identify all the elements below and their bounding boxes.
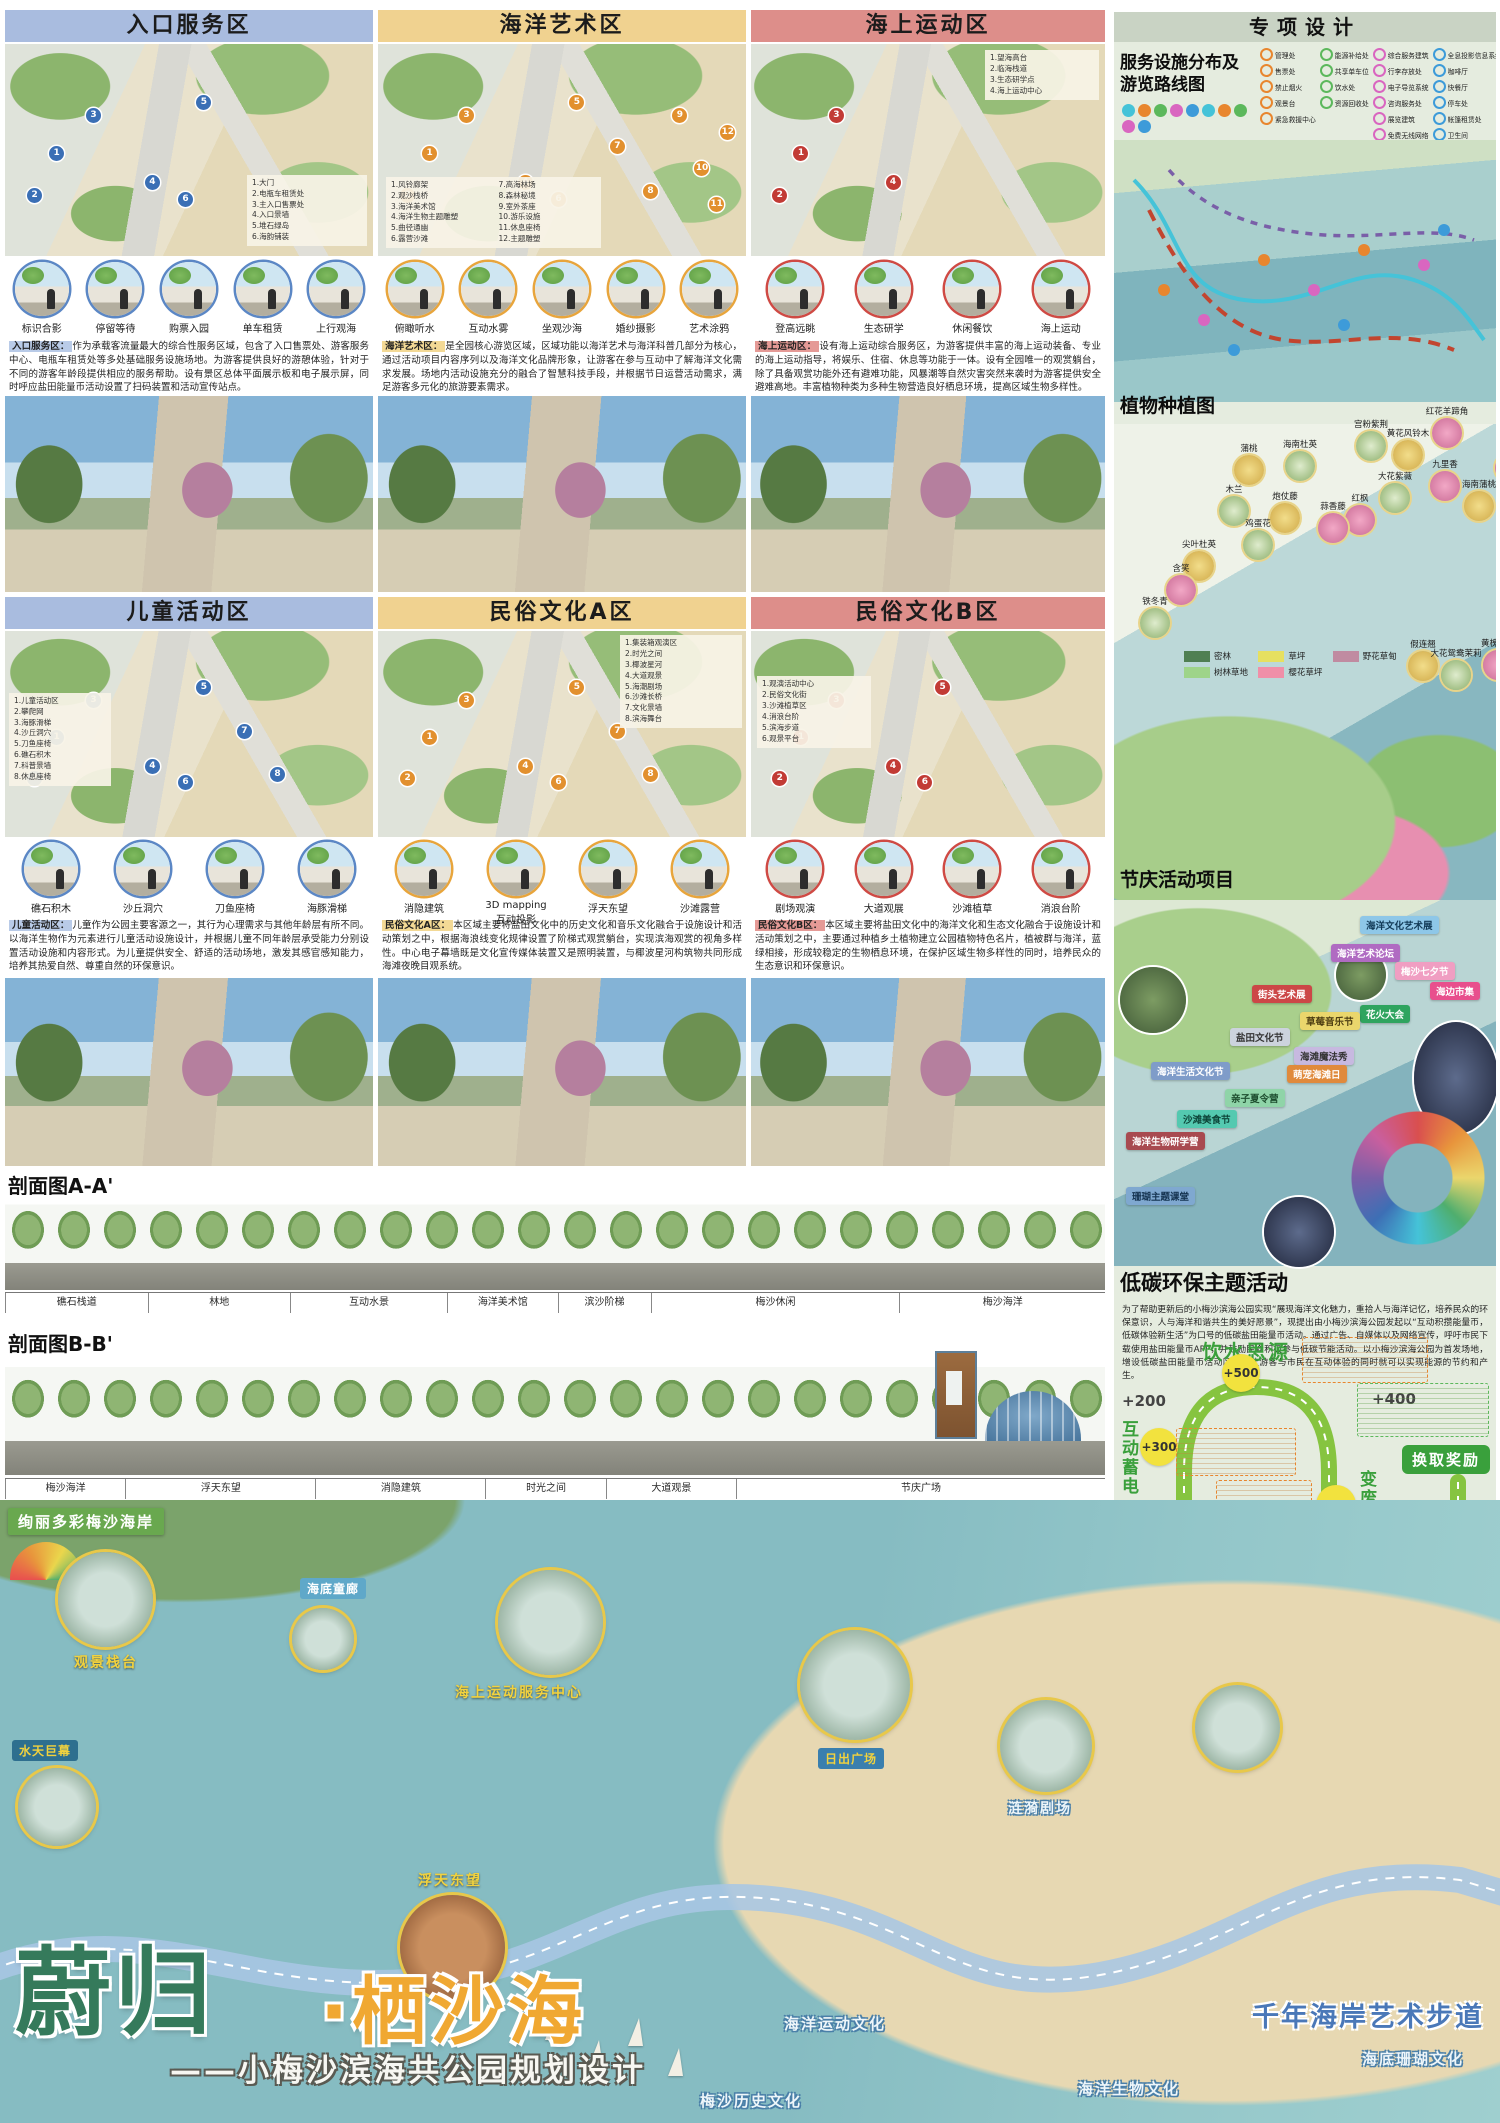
plan-marker: 2 (772, 188, 787, 203)
activity-icon-item: 生态研学 (853, 262, 915, 335)
special-design-panel: 专项设计 服务设施分布及 游览路线图 管理处售票处禁止烟火观景台紧急救援中心 能… (1114, 12, 1496, 1760)
activity-vignette-icon (535, 262, 589, 316)
plan-legend-item: 1.风铃廊架 (391, 180, 489, 191)
zone-tag: 民俗文化A区 (382, 920, 453, 931)
festival-chip: 街头艺术展 (1252, 985, 1312, 1003)
station-reward: 换取奖励 (1402, 1445, 1490, 1474)
facility-dot-icon (1433, 48, 1446, 61)
plan-marker: 1 (793, 146, 808, 161)
activity-icon-item: 上行观海 (305, 262, 367, 335)
beach-area-tag: 绚丽多彩梅沙海岸 (8, 1508, 164, 1535)
activity-icon-label: 艺术涂鸦 (678, 320, 740, 335)
callout-circle-ripple-theater (1000, 1700, 1092, 1792)
festival-chip: 海洋文化艺术展 (1360, 916, 1439, 934)
activity-vignette-icon (581, 842, 635, 896)
activity-icon-label: 沙丘洞穴 (112, 900, 174, 915)
festival-chip: 萌宠海滩日 (1287, 1065, 1347, 1083)
activity-vignette-icon (682, 262, 736, 316)
plan-legend-item: 2.时光之间 (625, 649, 737, 660)
facility-dot-icon (1373, 48, 1386, 61)
planting-legend-label: 树林草地 (1214, 666, 1248, 678)
festival-chip: 珊瑚主题课堂 (1126, 1187, 1195, 1205)
zone-tag: 民俗文化B区 (755, 920, 825, 931)
plan-legend-item: 10.游乐设施 (499, 212, 597, 223)
festival-photo-park (1120, 967, 1186, 1033)
facility-label: 全息投影信息系统 (1448, 50, 1496, 60)
activity-icon-item: 大道观展 (853, 842, 915, 915)
activity-icon-label: 休闲餐饮 (941, 320, 1003, 335)
beach-masterplan: 绚丽多彩梅沙海岸 观景栈台 水天巨幕 海底童廊 海上运动服务中心 日出广场 浮天… (0, 1500, 1500, 2123)
plan-legend: 1.集装箱观演区2.时光之间3.椰波星河4.大道观景5.海潮剧场6.沙滩长桥7.… (620, 635, 742, 728)
plan-marker: 3 (459, 108, 474, 123)
plan-legend-item: 4.海上运动中心 (990, 86, 1094, 97)
zone-plan-map: 123456 1.大门2.电瓶车租赁处3.主入口售票处4.入口景墙5.堆石绿岛6… (5, 44, 373, 256)
zone-children-activity: 儿童活动区 12345678 1.儿童活动区2.攀爬网3.海豚滑梯4.沙丘洞穴5… (5, 597, 373, 989)
section-strip-label: 梅沙海洋 (899, 1293, 1105, 1313)
point-500: +500 (1222, 1354, 1260, 1392)
plan-legend-item: 5.曲径通幽 (391, 223, 489, 234)
activity-icon-label: 大道观展 (853, 900, 915, 915)
callout-label-sunrise-plaza: 日出广场 (818, 1748, 884, 1769)
activity-vignette-icon (1034, 842, 1088, 896)
activity-icon-label: 购票入园 (158, 320, 220, 335)
facility-label: 管理处 (1275, 50, 1295, 60)
plant-photo-icon (1140, 608, 1170, 638)
facility-label: 帐篷租赁处 (1448, 114, 1482, 124)
plan-marker: 1 (422, 146, 437, 161)
plan-legend: 1.风铃廊架2.观沙栈桥3.海洋美术馆4.海洋生物主题雕塑5.曲径通幽6.露营沙… (386, 177, 601, 248)
activity-icon-label: 海上运动 (1030, 320, 1092, 335)
activity-icon-label: 生态研学 (853, 320, 915, 335)
plant-label: 尖叶杜英 (1164, 538, 1234, 550)
zone-entrance-service: 入口服务区 123456 1.大门2.电瓶车租赁处3.主入口售票处4.入口景墙5… (5, 10, 373, 402)
callout-label-viewing-deck: 观景栈台 (74, 1652, 138, 1672)
activity-icons: 剧场观演大道观展沙滩植草消浪台阶 (751, 842, 1105, 915)
facility-label: 快餐厅 (1448, 82, 1468, 92)
activity-icon-label: 消浪台阶 (1030, 900, 1092, 915)
section-ground (5, 1263, 1105, 1290)
plan-legend-item: 1.大门 (252, 178, 362, 189)
festival-chip: 海洋艺术论坛 (1331, 944, 1400, 962)
plan-legend-item: 6.露营沙滩 (391, 234, 489, 245)
plan-legend: 1.儿童活动区2.攀爬网3.海豚滑梯4.沙丘洞穴5.刀鱼座椅6.礁石积木7.科普… (9, 693, 111, 786)
plant-label: 红花羊蹄角 (1412, 405, 1482, 417)
activity-icon-item: 互动水雾 (457, 262, 519, 335)
festival-chip: 海洋生活文化节 (1151, 1062, 1230, 1080)
culture-label-biology: 海洋生物文化 (1078, 2078, 1180, 2099)
plant-label: 含笑 (1146, 562, 1216, 574)
zone-plan-map: 1234 1.望海高台2.临海栈道3.生态研学点4.海上运动中心 (751, 44, 1105, 256)
facility-group-eco: 能源补给处共享单车位饮水处资源回收处 (1320, 48, 1369, 144)
facility-group-amenity: 全息投影信息系统咖啡厅快餐厅停车处帐篷租赁处卫生间 (1433, 48, 1496, 144)
plan-legend-item: 2.民俗文化街 (762, 690, 866, 701)
activity-icon-item: 沙丘洞穴 (112, 842, 174, 915)
activity-vignette-icon (673, 842, 727, 896)
plan-legend-item: 1.望海高台 (990, 53, 1094, 64)
facility-label: 饮水处 (1335, 82, 1355, 92)
zone-description: 海上运动区设有海上运动综合服务区，为游客提供丰富的海上运动装备、专业的海上运动指… (755, 340, 1101, 395)
activity-icons: 登高远眺生态研学休闲餐饮海上运动 (751, 262, 1105, 335)
activity-vignette-icon (388, 262, 442, 316)
facility-label: 咨询服务处 (1388, 98, 1422, 108)
facility-dot-icon (1320, 80, 1333, 93)
activity-vignette-icon (15, 262, 69, 316)
plant-label: 大花鸳鸯茉莉 (1421, 647, 1491, 659)
section-aa-strip: 礁石栈道林地互动水景海洋美术馆滨沙阶梯梅沙休闲梅沙海洋 (5, 1292, 1105, 1313)
festival-chip: 亲子夏令营 (1225, 1089, 1285, 1107)
activity-icons: 标识合影停留等待购票入园单车租赁上行观海 (5, 262, 373, 335)
festival-chip: 海滩魔法秀 (1294, 1047, 1354, 1065)
section-strip-label: 消隐建筑 (315, 1479, 485, 1499)
plan-marker: 6 (178, 775, 193, 790)
activity-icon-item: 沙滩露营 (669, 842, 731, 926)
section-tree-band (5, 1206, 1105, 1258)
section-strip-label: 时光之间 (485, 1479, 605, 1499)
plan-marker: 1 (422, 730, 437, 745)
plant-label: 蒜香藤 (1298, 500, 1368, 512)
activity-vignette-icon (236, 262, 290, 316)
facility-dot-icon (1433, 96, 1446, 109)
facility-dot-icon (1433, 112, 1446, 125)
plan-legend-item: 5.海潮剧场 (625, 682, 737, 693)
zone-title: 海上运动区 (751, 10, 1105, 42)
plan-marker: 10 (694, 161, 709, 176)
facility-group-service: 综合服务建筑行李存放处电子导览系统咨询服务处展览建筑免费无线网络 (1373, 48, 1429, 144)
festival-chip: 海边市集 (1430, 982, 1480, 1000)
facility-dot-icon (1260, 80, 1273, 93)
activity-icon-item: 刀鱼座椅 (204, 842, 266, 915)
route-lines (1114, 140, 1496, 402)
plan-legend-item: 2.电瓶车租赁处 (252, 189, 362, 200)
plan-legend: 1.大门2.电瓶车租赁处3.主入口售票处4.入口景墙5.堆石绿岛6.海韵铺装 (247, 175, 367, 246)
facility-item: 资源回收处 (1320, 96, 1369, 109)
zone-plan-map: 12345678 1.儿童活动区2.攀爬网3.海豚滑梯4.沙丘洞穴5.刀鱼座椅6… (5, 631, 373, 837)
callout-label-undersea-gallery: 海底童廊 (300, 1578, 366, 1599)
activity-icon-item: 单车租赁 (232, 262, 294, 335)
plan-legend-item: 1.集装箱观演区 (625, 638, 737, 649)
zone-description: 民俗文化A区本区域主要将盐田文化中的历史文化和音乐文化融合于设施设计和活动策划之… (382, 919, 742, 974)
plan-marker: 6 (551, 775, 566, 790)
activity-icon-label: 消隐建筑 (393, 900, 455, 915)
plant-photo-icon (1441, 660, 1471, 690)
plan-legend-item: 9.室外茶座 (499, 202, 597, 213)
facility-label: 免费无线网络 (1388, 130, 1429, 140)
facility-label: 电子导览系统 (1388, 82, 1429, 92)
poster-subtitle: ——小梅沙滨海共公园规划设计 (170, 2045, 646, 2090)
facility-item: 咖啡厅 (1433, 64, 1496, 77)
facility-label: 紧急救援中心 (1275, 114, 1316, 124)
planting-color-swatch (1258, 651, 1284, 662)
zone-title: 入口服务区 (5, 10, 373, 42)
plan-marker: 12 (720, 125, 735, 140)
plan-legend-item: 6.礁石积木 (14, 750, 106, 761)
plant-item: 铁冬青 (1120, 595, 1190, 638)
facility-label: 停车处 (1448, 98, 1468, 108)
facility-label: 能源补给处 (1335, 50, 1369, 60)
zone-plan-map: 123456 1.观演活动中心2.民俗文化街3.沙滩植草区4.消浪台阶5.滨海步… (751, 631, 1105, 837)
facility-label: 资源回收处 (1335, 98, 1369, 108)
activity-icon-label: 刀鱼座椅 (204, 900, 266, 915)
facility-label: 展览建筑 (1388, 114, 1415, 124)
plan-legend-item: 6.海韵铺装 (252, 232, 362, 243)
callout-label-sky-screen: 水天巨幕 (12, 1740, 78, 1761)
facility-dot-icon (1433, 80, 1446, 93)
plant-label: 大花紫薇 (1360, 470, 1430, 482)
plan-marker: 5 (196, 95, 211, 110)
activity-icon-label: 停留等待 (84, 320, 146, 335)
activity-icon-item: 3D mapping 互动投影 (485, 842, 547, 926)
facility-item: 观景台 (1260, 96, 1316, 109)
activity-icon-label: 沙滩露营 (669, 900, 731, 915)
culture-label-history: 梅沙历史文化 (700, 2090, 802, 2111)
plan-legend-item: 3.主入口售票处 (252, 200, 362, 211)
planting-legend-item: 密林 (1184, 650, 1250, 662)
service-title-line2: 游览路线图 (1120, 74, 1239, 96)
plan-legend-item: 3.沙滩植草区 (762, 701, 866, 712)
plant-item: 蒲桃 (1214, 442, 1284, 485)
activity-icon-label: 俯瞰听水 (384, 320, 446, 335)
planting-legend-item: 树林草地 (1184, 666, 1250, 678)
activity-icon-item: 艺术涂鸦 (678, 262, 740, 335)
sailboat-icon (628, 2018, 643, 2046)
activity-icon-item: 标识合影 (11, 262, 73, 335)
activity-vignette-icon (857, 842, 911, 896)
facility-item: 行李存放处 (1373, 64, 1429, 77)
plan-marker: 5 (935, 680, 950, 695)
planting-legend-item: 樱花草坪 (1258, 666, 1324, 678)
plan-legend-item: 3.椰波星河 (625, 660, 737, 671)
activity-vignette-icon (1034, 262, 1088, 316)
note-formula (1357, 1383, 1489, 1437)
facility-dot-icon (1260, 96, 1273, 109)
plan-marker: 8 (270, 767, 285, 782)
section-bb-drawing (5, 1355, 1105, 1475)
plan-legend-item: 6.观景平台 (762, 734, 866, 745)
plan-legend-item: 5.堆石绿岛 (252, 221, 362, 232)
section-strip-label: 礁石栈道 (5, 1293, 148, 1313)
sailboat-icon (668, 2048, 683, 2076)
rendering-ocean-art (378, 396, 746, 592)
activity-vignette-icon (489, 842, 543, 896)
section-aa-drawing (5, 1195, 1105, 1290)
design-poster: 入口服务区 123456 1.大门2.电瓶车租赁处3.主入口售票处4.入口景墙5… (0, 0, 1500, 2123)
plan-marker: 6 (178, 192, 193, 207)
festival-chip: 草莓音乐节 (1300, 1012, 1360, 1030)
plan-legend-item: 5.滨海步道 (762, 723, 866, 734)
facility-item: 饮水处 (1320, 80, 1369, 93)
plant-label: 鸡蛋花 (1223, 517, 1293, 529)
activity-icon-item: 购票入园 (158, 262, 220, 335)
zone-description: 海洋艺术区是全园核心游览区域，区域功能以海洋艺术与海洋科普几部分为核心，通过活动… (382, 340, 742, 395)
plan-marker: 4 (886, 759, 901, 774)
activity-icon-label: 礁石积木 (20, 900, 82, 915)
plan-legend-item: 1.观演活动中心 (762, 679, 866, 690)
zone-plan-map: 123456789101112 1.风铃廊架2.观沙栈桥3.海洋美术馆4.海洋生… (378, 44, 746, 256)
callout-circle-sunrise-plaza (800, 1630, 910, 1740)
activity-vignette-icon (300, 842, 354, 896)
plan-legend-item: 7.科普景墙 (14, 761, 106, 772)
facility-item: 共享单车位 (1320, 64, 1369, 77)
facility-dot-icon (1373, 80, 1386, 93)
facility-dot-icon (1260, 64, 1273, 77)
plan-marker: 2 (772, 771, 787, 786)
planting-color-swatch (1184, 667, 1210, 678)
activity-icon-item: 海豚滑梯 (296, 842, 358, 915)
plan-marker: 1 (49, 146, 64, 161)
activity-icon-label: 上行观海 (305, 320, 367, 335)
plan-marker: 3 (829, 108, 844, 123)
service-title-line1: 服务设施分布及 (1120, 52, 1239, 74)
activity-vignette-icon (609, 262, 663, 316)
plan-legend-item: 8.滨海舞台 (625, 714, 737, 725)
facility-label: 售票处 (1275, 66, 1295, 76)
facility-group-management: 管理处售票处禁止烟火观景台紧急救援中心 (1260, 48, 1316, 144)
festival-chip: 花火大会 (1360, 1005, 1410, 1023)
zone-tag: 海洋艺术区 (382, 341, 445, 352)
culture-label-sports: 海洋运动文化 (784, 2013, 886, 2034)
plan-legend-item: 3.海豚滑梯 (14, 718, 106, 729)
section-strip-label: 海洋美术馆 (447, 1293, 558, 1313)
activity-vignette-icon (162, 262, 216, 316)
note-drinking (1302, 1337, 1428, 1383)
rendering-folk-b (751, 978, 1105, 1166)
zone-folk-culture-a: 民俗文化A区 12345678 1.集装箱观演区2.时光之间3.椰波星河4.大道… (378, 597, 746, 989)
festival-chip: 海洋生物研学营 (1126, 1132, 1205, 1150)
plan-legend-item: 8.休息座椅 (14, 772, 106, 783)
culture-label-coral: 海底珊瑚文化 (1362, 2048, 1464, 2069)
activity-icon-label: 单车租赁 (232, 320, 294, 335)
section-strip-label: 节庆广场 (736, 1479, 1105, 1499)
plant-label: 海南蒲桃 (1444, 478, 1496, 490)
facility-item: 电子导览系统 (1373, 80, 1429, 93)
plan-marker: 3 (459, 693, 474, 708)
plan-marker: 2 (27, 188, 42, 203)
activity-icon-item: 剧场观演 (764, 842, 826, 915)
facility-item: 帐篷租赁处 (1433, 112, 1496, 125)
annual-calendar-wheel (1340, 1100, 1496, 1256)
section-strip-label: 梅沙海洋 (5, 1479, 125, 1499)
plan-legend-item: 1.儿童活动区 (14, 696, 106, 707)
planting-legend-label: 草坪 (1288, 650, 1305, 662)
activity-icon-item: 婚纱摄影 (605, 262, 667, 335)
zone-folk-culture-b: 民俗文化B区 123456 1.观演活动中心2.民俗文化街3.沙滩植草区4.消浪… (751, 597, 1105, 989)
activity-vignette-icon (397, 842, 451, 896)
plan-legend-item: 4.沙丘洞穴 (14, 728, 106, 739)
activity-icon-label: 坐观沙海 (531, 320, 593, 335)
activity-vignette-icon (768, 842, 822, 896)
facility-label: 卫生间 (1448, 130, 1468, 140)
facility-item: 全息投影信息系统 (1433, 48, 1496, 61)
activity-icon-label: 剧场观演 (764, 900, 826, 915)
zone-plan-map: 12345678 1.集装箱观演区2.时光之间3.椰波星河4.大道观景5.海潮剧… (378, 631, 746, 837)
point-200a: +200 (1122, 1392, 1166, 1410)
festival-chip: 盐田文化节 (1230, 1028, 1290, 1046)
facility-label: 禁止烟火 (1275, 82, 1302, 92)
zone-tag: 入口服务区 (9, 341, 72, 352)
activity-icon-label: 海豚滑梯 (296, 900, 358, 915)
facility-dot-icon (1320, 64, 1333, 77)
zone-description: 民俗文化B区本区域主要将盐田文化中的海洋文化和生态文化融合于设施设计和活动策划之… (755, 919, 1101, 974)
activity-icon-item: 休闲餐饮 (941, 262, 1003, 335)
plan-legend-item: 2.观沙栈桥 (391, 191, 489, 202)
plant-label: 榕树 (1475, 440, 1496, 452)
plan-legend-item: 4.入口景墙 (252, 210, 362, 221)
facility-dot-icon (1373, 112, 1386, 125)
plan-legend-item: 4.大道观景 (625, 671, 737, 682)
plan-legend-item: 12.主题雕塑 (499, 234, 597, 245)
activity-vignette-icon (768, 262, 822, 316)
facility-item: 综合服务建筑 (1373, 48, 1429, 61)
plant-label: 九里香 (1410, 458, 1480, 470)
rendering-entrance (5, 396, 373, 592)
poster-title-main: 蔚归 (15, 1915, 215, 2054)
planting-legend: 密林草坪野花草甸树林草地樱花草坪 (1184, 650, 1399, 678)
section-strip-label: 互动水景 (290, 1293, 447, 1313)
plan-marker: 9 (672, 108, 687, 123)
activity-icon-item: 俯瞰听水 (384, 262, 446, 335)
planting-legend-item: 草坪 (1258, 650, 1324, 662)
facility-item: 咨询服务处 (1373, 96, 1429, 109)
zone-title: 儿童活动区 (5, 597, 373, 629)
plan-legend-item: 4.海洋生物主题雕塑 (391, 212, 489, 223)
plan-legend-item: 3.生态研学点 (990, 75, 1094, 86)
plan-legend-item: 5.刀鱼座椅 (14, 739, 106, 750)
plan-legend-item: 3.海洋美术馆 (391, 202, 489, 213)
plan-marker: 7 (237, 724, 252, 739)
plant-label: 蒲桃 (1214, 442, 1284, 454)
section-strip-label: 滨沙阶梯 (558, 1293, 651, 1313)
facility-label: 咖啡厅 (1448, 66, 1468, 76)
activity-icon-item: 沙滩植草 (941, 842, 1003, 915)
facility-item: 能源补给处 (1320, 48, 1369, 61)
callout-circle-undersea-gallery (292, 1608, 354, 1670)
zone-title: 民俗文化B区 (751, 597, 1105, 629)
facility-dot-icon (1433, 64, 1446, 77)
plan-legend-item: 7.高海林场 (499, 180, 597, 191)
plant-photo-icon (1285, 451, 1315, 481)
section-ground (5, 1441, 1105, 1475)
plan-marker: 5 (196, 680, 211, 695)
planting-legend-item: 野花草甸 (1333, 650, 1399, 662)
plan-marker: 4 (145, 759, 160, 774)
facility-dot-icon (1260, 48, 1273, 61)
callout-label-sports-center: 海上运动服务中心 (455, 1682, 583, 1702)
festival-chip: 沙滩美食节 (1177, 1110, 1237, 1128)
lowcarbon-title: 低碳环保主题活动 (1120, 1270, 1288, 1297)
facility-dot-icon (1373, 96, 1386, 109)
facility-item: 停车处 (1433, 96, 1496, 109)
section-strip-label: 林地 (148, 1293, 291, 1313)
art-walkway-title: 千年海岸艺术步道 (1252, 1995, 1484, 2034)
zone-tag: 儿童活动区 (9, 920, 72, 931)
plant-photo-icon (1243, 530, 1273, 560)
poster-title-accent: ·栖沙海 (320, 1952, 586, 2059)
callout-circle-extra (1195, 1685, 1280, 1770)
callout-label-futian-east: 浮天东望 (418, 1870, 482, 1890)
section-strip-label: 梅沙休闲 (651, 1293, 900, 1313)
lookout-tower (935, 1351, 977, 1439)
facility-dot-icon (1373, 64, 1386, 77)
zone-title: 民俗文化A区 (378, 597, 746, 629)
plant-item: 海南蒲桃 (1444, 478, 1496, 521)
facility-dot-icon (1320, 48, 1333, 61)
plan-legend-item: 4.消浪台阶 (762, 712, 866, 723)
plan-marker: 3 (86, 108, 101, 123)
zone-sea-sports: 海上运动区 1234 1.望海高台2.临海栈道3.生态研学点4.海上运动中心 登… (751, 10, 1105, 402)
plan-marker: 11 (709, 197, 724, 212)
planting-color-swatch (1258, 667, 1284, 678)
plan-legend-item: 7.文化景墙 (625, 703, 737, 714)
